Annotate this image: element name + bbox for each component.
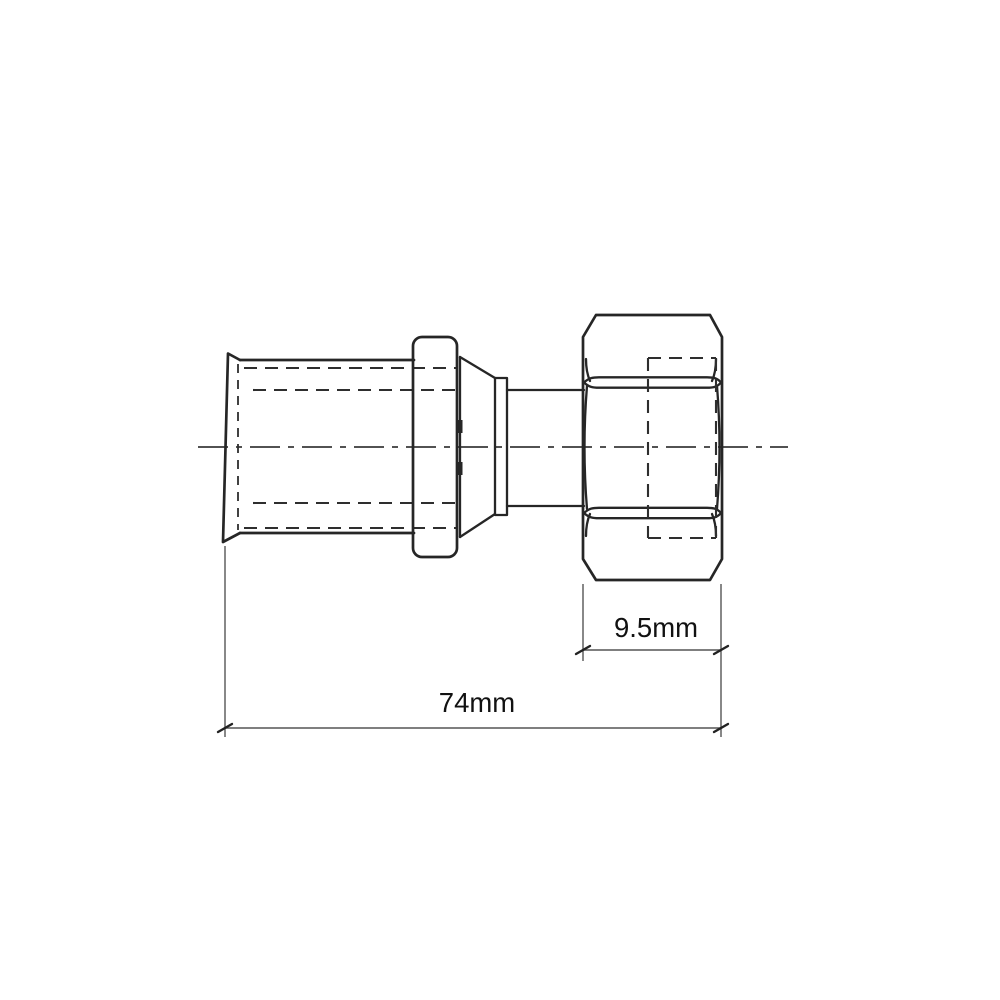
nut-hex-band-upper (584, 377, 721, 387)
dimension-label-nut-width: 9.5mm (614, 612, 698, 643)
technical-drawing-page: 9.5mm 74mm (0, 0, 1000, 1000)
hidden-thread-lines (648, 358, 716, 538)
dimension-nut-width: 9.5mm (576, 612, 728, 654)
dimension-overall-length: 74mm (218, 687, 728, 732)
nut-hex-band-lower (584, 508, 721, 518)
drawing-canvas: 9.5mm 74mm (0, 0, 1000, 1000)
cone-mark-lower (457, 462, 463, 475)
dimension-label-overall-length: 74mm (439, 687, 515, 718)
neck (507, 390, 584, 506)
cone-mark-upper (457, 420, 463, 433)
hidden-bore-lines (244, 368, 459, 528)
